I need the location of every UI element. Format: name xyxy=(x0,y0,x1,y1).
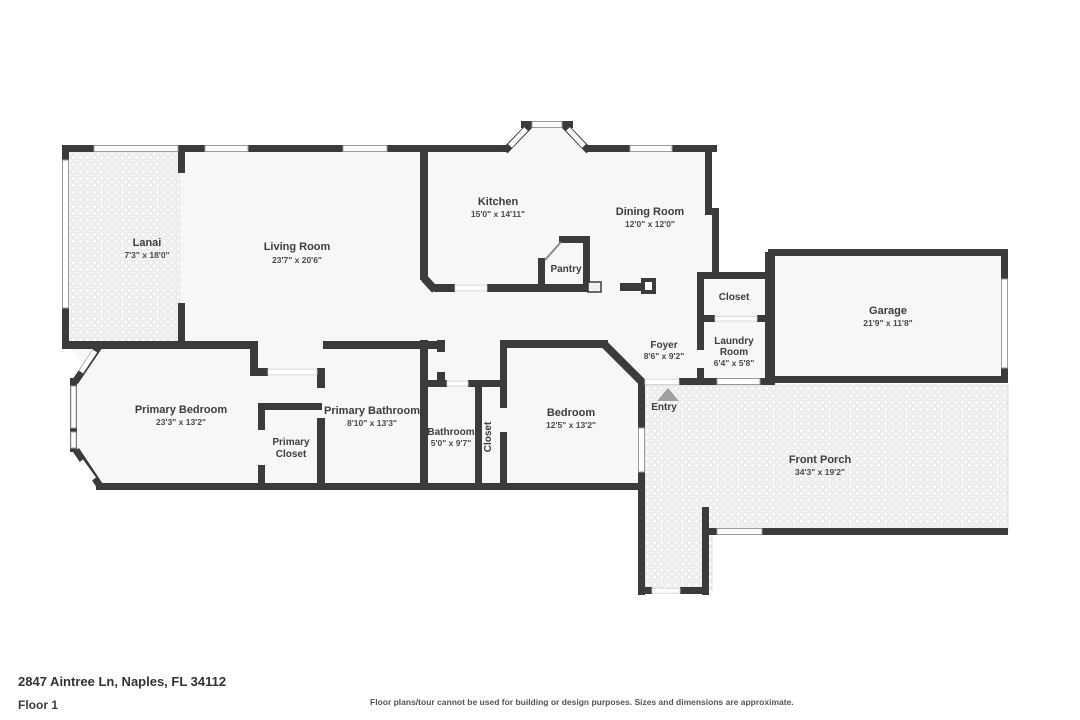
svg-text:Front Porch: Front Porch xyxy=(789,454,852,466)
garage-door-opening xyxy=(1002,279,1008,368)
svg-text:Primary Bathroom: Primary Bathroom xyxy=(324,405,420,417)
svg-text:5'0" x 9'7": 5'0" x 9'7" xyxy=(431,438,471,448)
svg-text:Bedroom: Bedroom xyxy=(547,407,596,419)
svg-text:21'9" x 11'8": 21'9" x 11'8" xyxy=(863,318,912,328)
svg-text:Closet: Closet xyxy=(483,421,494,452)
room-label-dining-room: Dining Room 12'0" x 12'0" xyxy=(616,206,685,229)
room-label-pantry: Pantry xyxy=(550,264,582,275)
svg-text:Foyer: Foyer xyxy=(650,340,677,351)
room-label-entry: Entry xyxy=(651,402,677,413)
disclaimer-text: Floor plans/tour cannot be used for buil… xyxy=(370,697,794,707)
front-porch-floor xyxy=(645,385,1008,590)
floor-label: Floor 1 xyxy=(18,698,58,712)
svg-text:Laundry: Laundry xyxy=(714,336,754,347)
svg-text:7'3" x 18'0": 7'3" x 18'0" xyxy=(124,250,169,260)
svg-text:Primary: Primary xyxy=(272,437,310,448)
svg-text:34'3" x 19'2": 34'3" x 19'2" xyxy=(795,467,845,477)
laundry-door-window xyxy=(717,379,760,385)
bedroom-window xyxy=(639,428,645,472)
room-label-closet-bedroom: Closet xyxy=(483,421,494,452)
address-text: 2847 Aintree Ln, Naples, FL 34112 xyxy=(18,674,226,689)
svg-text:Bathroom: Bathroom xyxy=(427,427,474,438)
room-label-bathroom: Bathroom 5'0" x 9'7" xyxy=(427,427,474,448)
svg-text:Living Room: Living Room xyxy=(264,241,331,253)
room-label-front-porch: Front Porch 34'3" x 19'2" xyxy=(789,454,852,477)
svg-text:Closet: Closet xyxy=(420,347,431,378)
room-label-bedroom: Bedroom 12'5" x 13'2" xyxy=(546,407,596,430)
svg-text:6'4" x 5'8": 6'4" x 5'8" xyxy=(714,358,754,368)
room-label-primary-closet: Primary Closet xyxy=(272,437,310,460)
svg-text:Closet: Closet xyxy=(276,449,307,460)
svg-text:Pantry: Pantry xyxy=(550,264,582,275)
svg-text:Primary Bedroom: Primary Bedroom xyxy=(135,404,228,416)
living-window-1 xyxy=(205,146,248,152)
room-label-kitchen: Kitchen 15'0" x 14'11" xyxy=(471,196,525,219)
svg-text:Closet: Closet xyxy=(719,292,750,303)
room-label-laundry: Laundry Room 6'4" x 5'8" xyxy=(714,336,754,368)
svg-text:23'3" x 13'2": 23'3" x 13'2" xyxy=(156,417,206,427)
primary-left-window-1 xyxy=(71,386,76,428)
room-label-garage: Garage 21'9" x 11'8" xyxy=(863,305,912,328)
svg-text:23'7" x 20'6": 23'7" x 20'6" xyxy=(272,255,322,265)
svg-text:15'0" x 14'11": 15'0" x 14'11" xyxy=(471,209,525,219)
floor-plan-svg: Lanai 7'3" x 18'0" Living Room 23'7" x 2… xyxy=(0,0,1080,720)
lanai-left-window xyxy=(63,160,69,308)
svg-text:Dining Room: Dining Room xyxy=(616,206,685,218)
svg-text:Room: Room xyxy=(720,347,748,358)
svg-text:Lanai: Lanai xyxy=(133,237,162,249)
svg-text:12'0" x 12'0": 12'0" x 12'0" xyxy=(625,219,675,229)
living-window-2 xyxy=(343,146,387,152)
lanai-floor xyxy=(66,148,180,346)
svg-text:Kitchen: Kitchen xyxy=(478,196,519,208)
lanai-top-window xyxy=(94,146,178,152)
svg-text:Entry: Entry xyxy=(651,402,677,413)
svg-text:8'6" x 9'2": 8'6" x 9'2" xyxy=(644,351,684,361)
bay-window-top xyxy=(532,122,562,128)
svg-text:8'10" x 13'3": 8'10" x 13'3" xyxy=(347,418,397,428)
primary-left-window-2 xyxy=(71,432,76,448)
room-label-closet-garage: Closet xyxy=(719,292,750,303)
svg-text:12'5" x 13'2": 12'5" x 13'2" xyxy=(546,420,596,430)
svg-text:Garage: Garage xyxy=(869,305,907,317)
dining-window xyxy=(630,146,672,152)
porch-window xyxy=(717,529,762,535)
room-label-closet-hall: Closet xyxy=(420,347,431,378)
